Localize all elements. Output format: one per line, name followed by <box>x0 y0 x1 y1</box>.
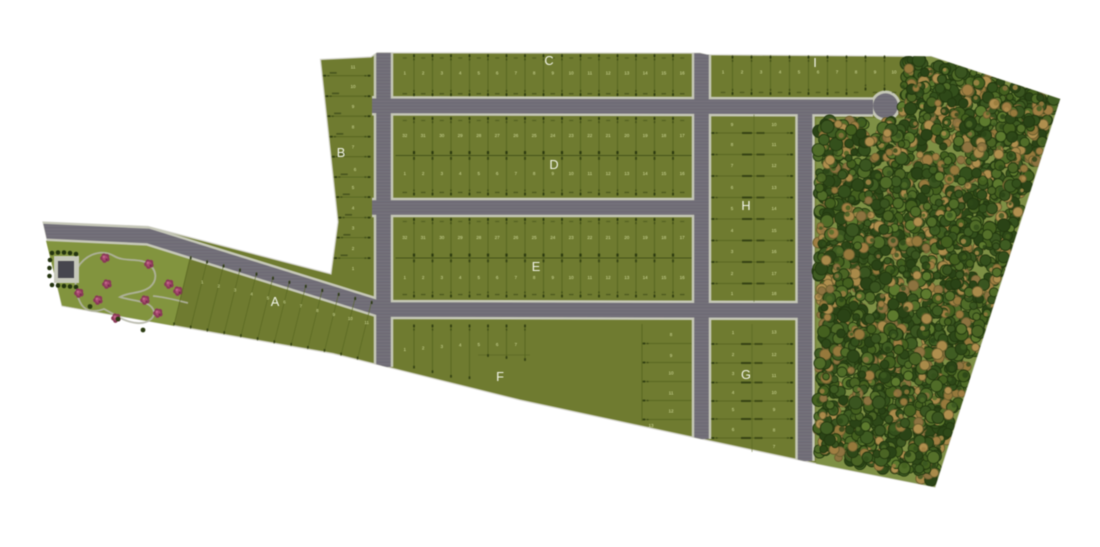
svg-text:5: 5 <box>732 407 735 412</box>
svg-text:13: 13 <box>624 71 630 76</box>
svg-text:28: 28 <box>476 133 482 138</box>
svg-text:31: 31 <box>421 235 427 240</box>
svg-text:12: 12 <box>606 71 612 76</box>
svg-text:27: 27 <box>495 133 501 138</box>
svg-text:26: 26 <box>513 133 519 138</box>
svg-text:6: 6 <box>354 167 357 172</box>
svg-text:H: H <box>741 198 750 213</box>
svg-text:22: 22 <box>587 133 593 138</box>
svg-text:26: 26 <box>513 235 519 240</box>
svg-text:10: 10 <box>569 71 575 76</box>
svg-text:19: 19 <box>643 133 649 138</box>
svg-text:C: C <box>544 53 553 68</box>
svg-text:15: 15 <box>661 275 667 280</box>
svg-text:17: 17 <box>680 235 686 240</box>
svg-text:7: 7 <box>836 70 839 75</box>
svg-text:3: 3 <box>352 226 355 231</box>
svg-text:4: 4 <box>459 71 462 76</box>
svg-text:10: 10 <box>771 390 777 395</box>
svg-text:F: F <box>496 369 504 384</box>
svg-text:10: 10 <box>771 122 777 127</box>
svg-text:2: 2 <box>422 71 425 76</box>
svg-text:32: 32 <box>402 235 408 240</box>
svg-text:4: 4 <box>352 205 355 210</box>
svg-text:1: 1 <box>404 347 407 352</box>
svg-text:14: 14 <box>643 171 649 176</box>
svg-text:32: 32 <box>402 133 408 138</box>
svg-text:25: 25 <box>532 235 538 240</box>
svg-text:6: 6 <box>496 171 499 176</box>
svg-text:10: 10 <box>891 70 897 75</box>
svg-text:31: 31 <box>421 133 427 138</box>
svg-text:4: 4 <box>459 343 462 348</box>
svg-text:1: 1 <box>732 330 735 335</box>
svg-text:10: 10 <box>569 275 575 280</box>
svg-text:18: 18 <box>661 133 667 138</box>
svg-text:13: 13 <box>771 185 777 190</box>
svg-text:30: 30 <box>439 235 445 240</box>
svg-text:17: 17 <box>771 271 777 276</box>
svg-text:11: 11 <box>587 71 592 76</box>
svg-text:12: 12 <box>771 163 777 168</box>
svg-text:4: 4 <box>731 228 734 233</box>
svg-text:11: 11 <box>772 142 777 147</box>
svg-text:G: G <box>741 367 751 382</box>
svg-text:1: 1 <box>722 70 725 75</box>
svg-text:10: 10 <box>350 84 356 89</box>
svg-text:14: 14 <box>771 206 777 211</box>
svg-text:8: 8 <box>533 71 536 76</box>
svg-text:15: 15 <box>661 171 667 176</box>
svg-text:5: 5 <box>478 275 481 280</box>
svg-text:E: E <box>532 259 541 274</box>
svg-text:6: 6 <box>732 427 735 432</box>
svg-text:7: 7 <box>515 71 518 76</box>
svg-text:3: 3 <box>441 275 444 280</box>
svg-text:7: 7 <box>515 171 518 176</box>
svg-text:3: 3 <box>441 171 444 176</box>
svg-text:1: 1 <box>404 171 407 176</box>
svg-text:8: 8 <box>533 275 536 280</box>
svg-text:16: 16 <box>771 249 777 254</box>
svg-text:6: 6 <box>731 185 734 190</box>
svg-text:9: 9 <box>552 275 555 280</box>
svg-text:28: 28 <box>476 235 482 240</box>
svg-text:23: 23 <box>569 235 575 240</box>
svg-text:9: 9 <box>670 353 673 358</box>
svg-text:13: 13 <box>771 330 777 335</box>
svg-text:D: D <box>549 157 558 172</box>
svg-text:5: 5 <box>478 71 481 76</box>
svg-text:8: 8 <box>533 171 536 176</box>
svg-text:9: 9 <box>874 70 877 75</box>
svg-text:13: 13 <box>648 423 654 428</box>
svg-text:1: 1 <box>352 266 355 271</box>
svg-text:8: 8 <box>855 70 858 75</box>
svg-text:8: 8 <box>731 142 734 147</box>
svg-text:2: 2 <box>422 275 425 280</box>
svg-text:12: 12 <box>606 275 612 280</box>
svg-text:13: 13 <box>624 275 630 280</box>
svg-text:4: 4 <box>732 390 735 395</box>
svg-text:2: 2 <box>732 352 735 357</box>
svg-text:A: A <box>271 294 280 309</box>
svg-text:24: 24 <box>550 133 556 138</box>
svg-text:7: 7 <box>731 163 734 168</box>
svg-text:14: 14 <box>643 71 649 76</box>
svg-text:11: 11 <box>587 171 592 176</box>
svg-text:6: 6 <box>496 342 499 347</box>
svg-text:18: 18 <box>771 291 777 296</box>
svg-text:7: 7 <box>515 275 518 280</box>
svg-text:23: 23 <box>569 133 575 138</box>
svg-text:21: 21 <box>606 133 612 138</box>
svg-text:3: 3 <box>441 71 444 76</box>
svg-text:2: 2 <box>422 171 425 176</box>
svg-text:4: 4 <box>459 275 462 280</box>
svg-text:9: 9 <box>773 407 776 412</box>
svg-text:2: 2 <box>731 271 734 276</box>
svg-text:11: 11 <box>669 391 674 396</box>
svg-text:2: 2 <box>352 246 355 251</box>
svg-text:7: 7 <box>515 342 518 347</box>
svg-text:16: 16 <box>680 171 686 176</box>
svg-text:17: 17 <box>680 133 686 138</box>
svg-text:30: 30 <box>439 133 445 138</box>
svg-text:5: 5 <box>352 185 355 190</box>
svg-text:15: 15 <box>661 71 667 76</box>
svg-text:22: 22 <box>587 235 593 240</box>
svg-text:8: 8 <box>352 125 355 130</box>
svg-text:I: I <box>813 55 817 70</box>
svg-text:25: 25 <box>532 133 538 138</box>
svg-text:12: 12 <box>668 409 674 414</box>
svg-text:8: 8 <box>773 428 776 433</box>
svg-text:2: 2 <box>422 346 425 351</box>
svg-text:1: 1 <box>731 291 734 296</box>
svg-text:1: 1 <box>404 275 407 280</box>
svg-text:11: 11 <box>772 373 777 378</box>
svg-text:11: 11 <box>351 65 356 70</box>
svg-text:3: 3 <box>441 344 444 349</box>
svg-text:10: 10 <box>668 371 674 376</box>
svg-text:12: 12 <box>606 171 612 176</box>
svg-text:19: 19 <box>643 235 649 240</box>
svg-text:20: 20 <box>624 235 630 240</box>
svg-text:12: 12 <box>771 352 777 357</box>
svg-text:6: 6 <box>817 70 820 75</box>
svg-text:9: 9 <box>552 71 555 76</box>
svg-text:3: 3 <box>731 249 734 254</box>
svg-text:6: 6 <box>496 71 499 76</box>
svg-text:4: 4 <box>779 70 782 75</box>
svg-text:5: 5 <box>731 206 734 211</box>
svg-text:15: 15 <box>771 228 777 233</box>
svg-text:4: 4 <box>459 171 462 176</box>
svg-text:9: 9 <box>731 122 734 127</box>
svg-text:2: 2 <box>741 70 744 75</box>
svg-text:13: 13 <box>624 171 630 176</box>
svg-text:21: 21 <box>606 235 612 240</box>
svg-text:11: 11 <box>364 320 369 325</box>
svg-text:1: 1 <box>404 71 407 76</box>
svg-text:20: 20 <box>624 133 630 138</box>
svg-text:6: 6 <box>496 275 499 280</box>
svg-text:9: 9 <box>352 104 355 109</box>
svg-text:16: 16 <box>680 71 686 76</box>
svg-text:8: 8 <box>670 332 673 337</box>
svg-text:11: 11 <box>587 275 592 280</box>
svg-text:3: 3 <box>760 70 763 75</box>
svg-text:7: 7 <box>773 444 776 449</box>
svg-text:7: 7 <box>352 145 355 150</box>
svg-text:24: 24 <box>550 235 556 240</box>
svg-text:B: B <box>337 145 346 160</box>
svg-text:10: 10 <box>348 316 353 321</box>
svg-text:16: 16 <box>680 275 686 280</box>
svg-text:27: 27 <box>495 235 501 240</box>
svg-text:18: 18 <box>661 235 667 240</box>
svg-text:29: 29 <box>458 133 464 138</box>
svg-text:5: 5 <box>478 171 481 176</box>
svg-text:29: 29 <box>458 235 464 240</box>
svg-text:5: 5 <box>478 342 481 347</box>
svg-text:10: 10 <box>569 171 575 176</box>
svg-text:5: 5 <box>798 70 801 75</box>
svg-text:3: 3 <box>732 371 735 376</box>
svg-text:14: 14 <box>643 275 649 280</box>
